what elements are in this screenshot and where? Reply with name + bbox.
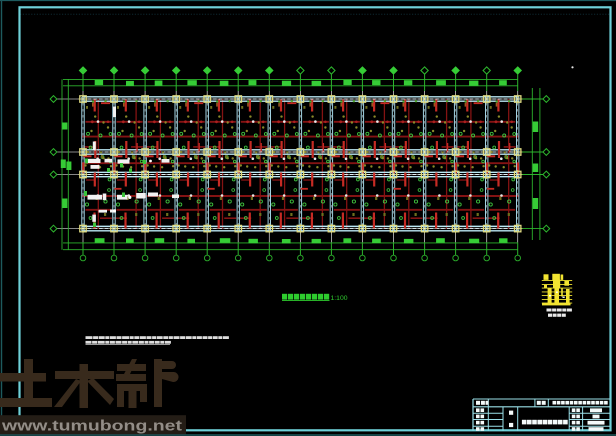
svg-text:1:100: 1:100 [331, 295, 348, 302]
svg-text:www.tumubong.net: www.tumubong.net [1, 417, 182, 434]
